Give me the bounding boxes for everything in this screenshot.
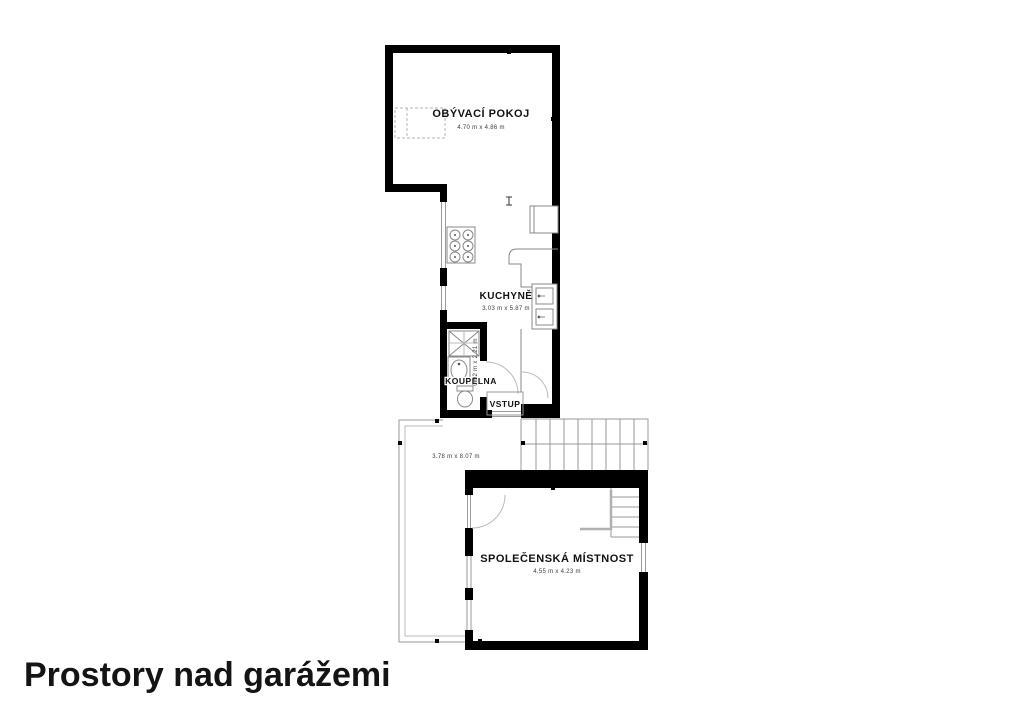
fridge-icon: [530, 206, 558, 233]
wall-common-bottom: [465, 641, 648, 650]
stair-railing: [580, 490, 611, 529]
wall-top: [385, 45, 560, 53]
tick-marker: [551, 486, 555, 490]
dims-kitchen: 3.03 m x 5.87 m: [482, 306, 530, 312]
wall-common-right: [639, 572, 648, 650]
tick-marker: [435, 639, 439, 643]
tick-marker: [386, 117, 390, 121]
washbasin-faucet: [458, 363, 461, 366]
dims-bathroom: 0.92 m x 2.21 m: [473, 338, 479, 386]
page-title: Prostory nad garážemi: [24, 656, 391, 695]
room-labels: OBÝVACÍ POKOJ 4.70 m x 4.86 m KUCHYNĚ 3.…: [432, 107, 634, 575]
label-living-room: OBÝVACÍ POKOJ: [432, 107, 529, 120]
wall-bath-top: [440, 322, 487, 329]
burner-dot: [467, 256, 469, 258]
burner-dot: [454, 245, 456, 247]
burner-dot: [467, 245, 469, 247]
label-kitchen: KUCHYNĚ: [480, 289, 533, 302]
label-bathroom: KOUPELNA: [445, 376, 497, 386]
burner-dot: [454, 256, 456, 258]
window-opening: [439, 286, 448, 310]
wall-common-left: [465, 528, 473, 556]
stove-icon: [447, 227, 475, 263]
toilet-bowl: [458, 391, 473, 407]
dims-common-room: 4.55 m x 4.23 m: [533, 569, 581, 575]
label-common-room: SPOLEČENSKÁ MÍSTNOST: [480, 552, 634, 565]
wall-bath-right-upper: [480, 322, 487, 361]
entry-door-arc: [522, 372, 548, 398]
common-room-door-arc: [472, 495, 505, 528]
tick-marker: [551, 117, 555, 121]
burner-dot: [454, 234, 456, 236]
dims-living-room: 4.70 m x 4.86 m: [457, 125, 505, 131]
inner-stairs: [580, 488, 639, 537]
i-beam-marker: [506, 197, 512, 205]
wall-common-top: [465, 470, 648, 488]
tick-marker: [435, 419, 439, 423]
wall-step: [385, 184, 447, 192]
label-entry: VSTUP: [490, 399, 521, 409]
wall-common-left: [465, 588, 473, 600]
tick-marker: [478, 639, 482, 643]
toilet-icon: [457, 386, 473, 407]
wall-bottom-right: [521, 404, 560, 418]
tick-marker: [643, 441, 647, 445]
dims-terrace: 3.78 m x 8.07 m: [432, 454, 480, 460]
door-arcs: [472, 362, 548, 528]
toilet-tank: [457, 386, 473, 391]
tick-marker: [398, 441, 402, 445]
burner-dot: [467, 234, 469, 236]
kitchen-counter: [509, 249, 558, 287]
tick-marker: [507, 50, 511, 54]
wall-bath-right-lower: [480, 397, 487, 418]
tick-marker: [521, 441, 525, 445]
kitchen-sink-icon: [532, 284, 557, 329]
stairs: [521, 419, 648, 470]
floor-plan-svg: OBÝVACÍ POKOJ 4.70 m x 4.86 m KUCHYNĚ 3.…: [0, 0, 1024, 722]
wall-common-right: [639, 470, 648, 543]
wall-common-left: [465, 470, 473, 495]
